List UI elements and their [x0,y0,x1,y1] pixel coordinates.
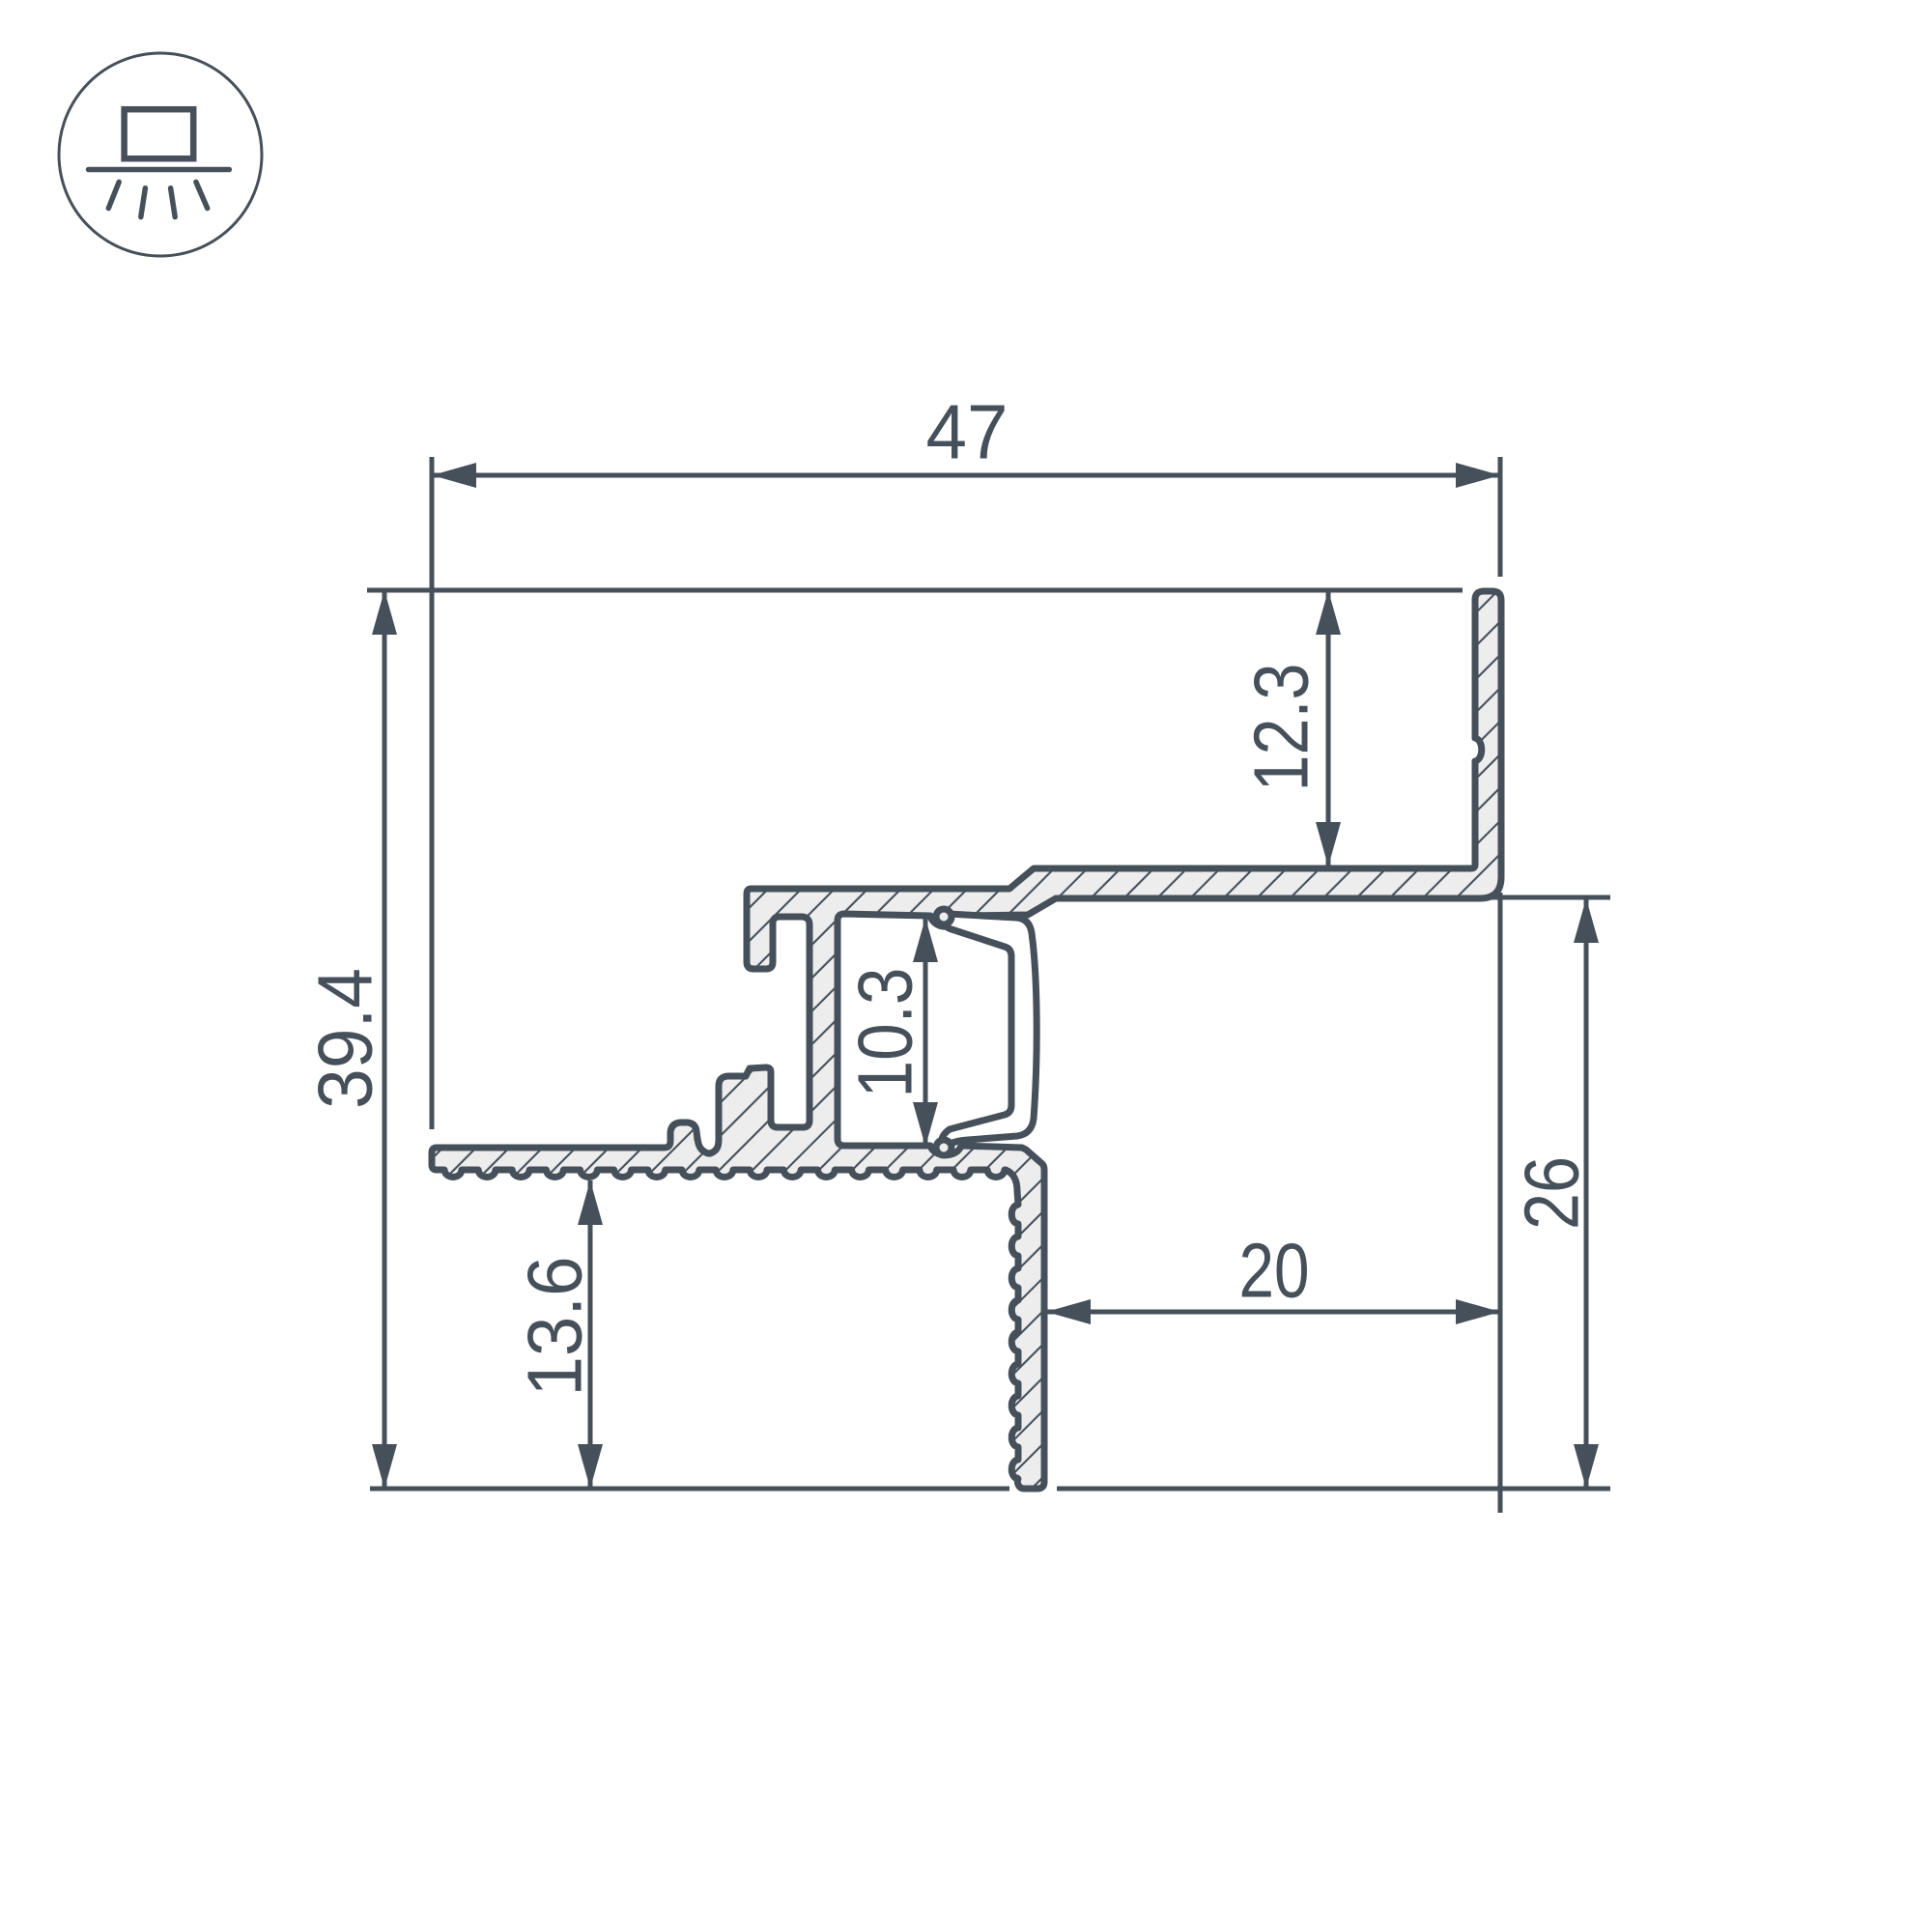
svg-text:10.3: 10.3 [842,968,928,1098]
svg-text:47: 47 [926,389,1009,475]
svg-text:12.3: 12.3 [1238,664,1324,792]
svg-text:39.4: 39.4 [302,968,388,1109]
svg-text:20: 20 [1239,1228,1310,1314]
svg-text:13.6: 13.6 [512,1257,598,1397]
svg-text:26: 26 [1509,1156,1595,1230]
